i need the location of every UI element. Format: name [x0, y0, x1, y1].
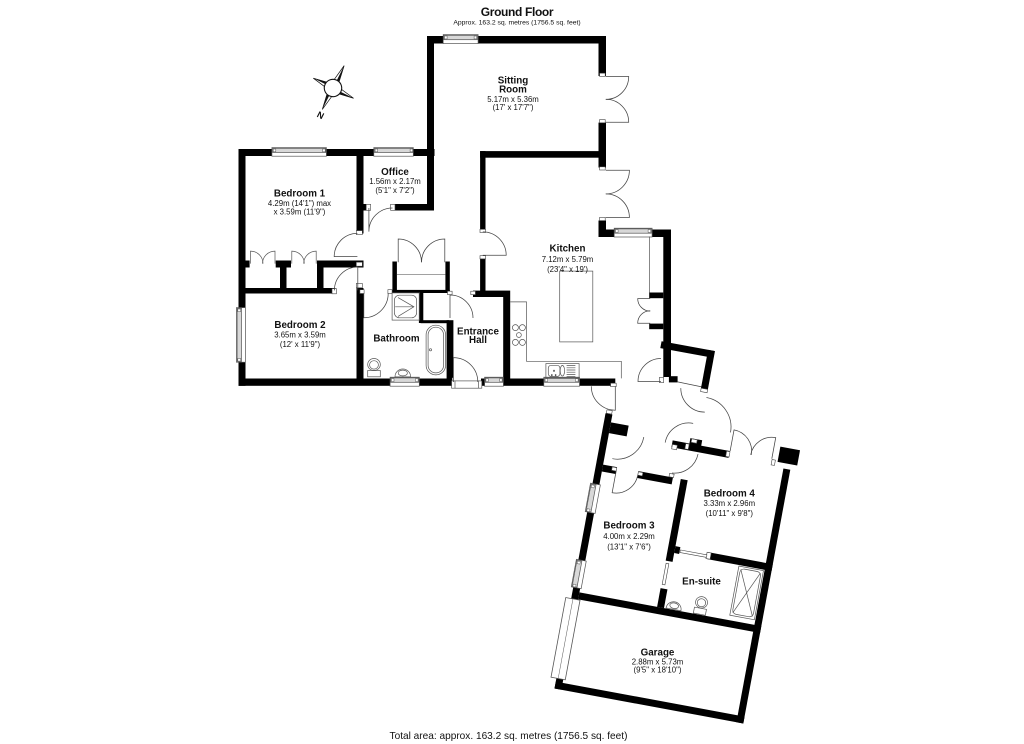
svg-text:1.56m x 2.17m: 1.56m x 2.17m	[369, 177, 421, 186]
svg-text:(12' x 11'9"): (12' x 11'9")	[280, 340, 321, 349]
svg-text:(10'11" x 9'8"): (10'11" x 9'8")	[706, 509, 754, 518]
svg-text:Bathroom: Bathroom	[373, 333, 420, 344]
svg-text:(13'1" x 7'6"): (13'1" x 7'6")	[607, 542, 651, 551]
svg-text:7.12m x 5.79m: 7.12m x 5.79m	[542, 255, 594, 264]
svg-text:Approx. 163.2 sq. metres (1756: Approx. 163.2 sq. metres (1756.5 sq. fee…	[453, 20, 580, 27]
svg-text:Bedroom 4: Bedroom 4	[704, 489, 756, 500]
svg-text:Bedroom 3: Bedroom 3	[603, 521, 655, 532]
svg-text:Kitchen: Kitchen	[550, 244, 586, 255]
svg-text:4.00m x 2.29m: 4.00m x 2.29m	[603, 532, 655, 541]
svg-text:Hall: Hall	[469, 335, 487, 346]
svg-text:x 3.59m (11'9"): x 3.59m (11'9")	[274, 207, 326, 216]
svg-text:(5'1" x 7'2"): (5'1" x 7'2")	[375, 186, 415, 195]
svg-text:3.65m x 3.59m: 3.65m x 3.59m	[274, 330, 326, 339]
svg-text:(17' x 17'7"): (17' x 17'7")	[493, 103, 534, 112]
svg-text:(9'5" x 18'10"): (9'5" x 18'10")	[634, 665, 682, 674]
svg-text:(23'4" x 19'): (23'4" x 19')	[547, 265, 588, 274]
svg-text:3.33m x 2.96m: 3.33m x 2.96m	[704, 499, 756, 508]
svg-text:Total area: approx. 163.2 sq.: Total area: approx. 163.2 sq. metres (17…	[390, 731, 628, 742]
svg-text:Ground Floor: Ground Floor	[481, 5, 554, 19]
svg-text:En-suite: En-suite	[682, 577, 721, 588]
